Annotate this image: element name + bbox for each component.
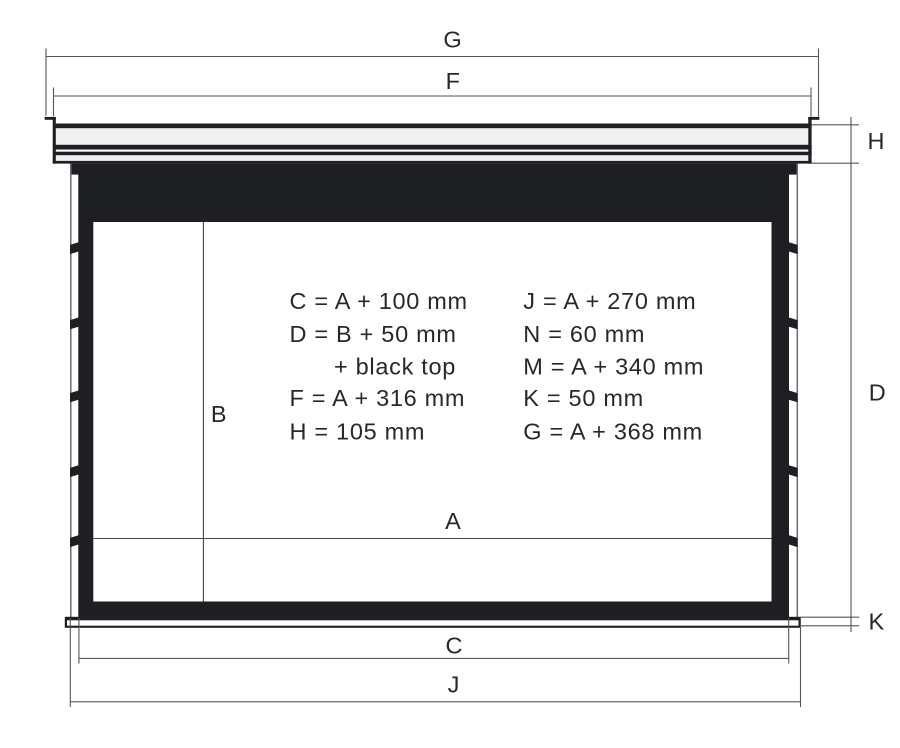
svg-text:H = 105 mm: H = 105 mm xyxy=(290,418,426,444)
svg-text:J: J xyxy=(448,671,460,697)
svg-text:G = A + 368 mm: G = A + 368 mm xyxy=(523,418,703,444)
svg-text:C = A + 100 mm: C = A + 100 mm xyxy=(290,288,468,314)
svg-text:K: K xyxy=(869,609,885,635)
svg-text:D = B + 50 mm: D = B + 50 mm xyxy=(290,321,457,347)
svg-text:C: C xyxy=(446,633,463,659)
svg-text:G: G xyxy=(443,27,461,53)
svg-text:J = A + 270 mm: J = A + 270 mm xyxy=(523,288,696,314)
svg-text:K = 50 mm: K = 50 mm xyxy=(523,385,644,411)
svg-text:N = 60 mm: N = 60 mm xyxy=(523,321,645,347)
svg-text:F: F xyxy=(446,68,460,94)
svg-text:D: D xyxy=(869,380,886,406)
svg-text:A: A xyxy=(445,508,461,534)
svg-text:B: B xyxy=(211,401,227,427)
svg-text:F = A + 316 mm: F = A + 316 mm xyxy=(290,385,466,411)
svg-text:M = A + 340 mm: M = A + 340 mm xyxy=(523,353,704,379)
svg-text:H: H xyxy=(868,128,885,154)
svg-text:+ black top: + black top xyxy=(334,353,456,379)
